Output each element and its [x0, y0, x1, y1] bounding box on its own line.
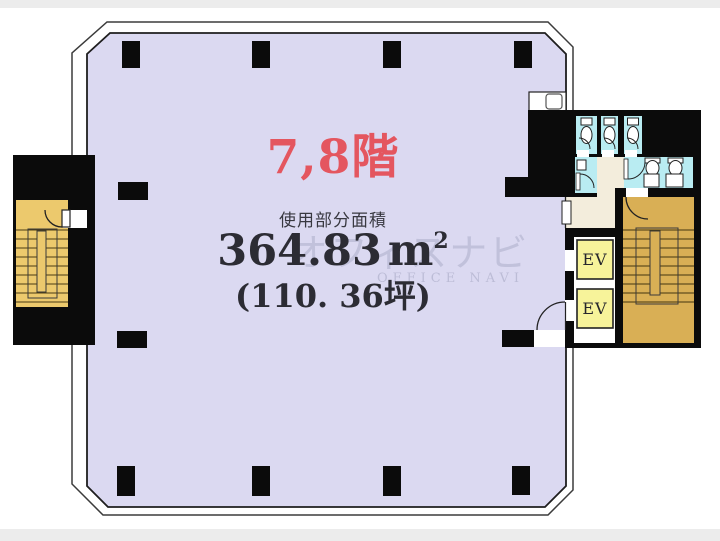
toilet-stalls: [576, 116, 642, 157]
column-icon: [252, 466, 270, 496]
wall-stub: [505, 177, 528, 197]
left-stair-handrail: [37, 231, 46, 292]
column-icon: [117, 466, 135, 496]
column-icon: [383, 41, 401, 68]
toilet-icon: [604, 127, 615, 144]
column-icon: [252, 41, 270, 68]
column-icon: [383, 466, 401, 496]
area-sqm-superscript: 2: [433, 228, 448, 254]
sink-icon: [546, 94, 562, 109]
door-opening: [534, 330, 565, 347]
urinal-icon: [669, 161, 682, 176]
area-sqm-unit: m: [388, 226, 434, 276]
area-sqm: 364.83m2: [183, 227, 483, 276]
toilet-tank-icon: [581, 118, 592, 125]
urinal-icon: [646, 161, 659, 176]
toilet-icon: [628, 127, 639, 144]
floor-plan: オフィスナビ OFFICE NAVI 7,8階 使用部分面積 364.83m2 …: [0, 0, 720, 541]
elevator-door-opening: [565, 250, 574, 271]
toilet-tank-icon: [628, 118, 639, 125]
area-sqm-value: 364.83: [217, 226, 382, 276]
bottom-frame-strip: [0, 529, 720, 541]
mens-wc: [624, 157, 693, 188]
toilet-tank-icon: [604, 118, 615, 125]
column-icon: [122, 41, 140, 68]
elevator-door-opening: [565, 300, 574, 321]
top-frame-strip: [0, 0, 720, 8]
accessible-wc: [575, 157, 597, 193]
door-leaf-icon: [576, 173, 580, 190]
right-stair-block: [615, 188, 701, 348]
column-icon: [512, 466, 530, 495]
door-opening: [626, 188, 648, 197]
door-opening: [602, 150, 614, 157]
door-leaf-icon: [562, 201, 571, 224]
column-icon: [514, 41, 532, 68]
sink-icon: [644, 174, 659, 187]
wall-stub: [502, 330, 534, 347]
floor-title: 7,8階: [203, 131, 463, 185]
column-icon: [118, 182, 148, 200]
sink-icon: [577, 160, 586, 170]
door-leaf-icon: [624, 159, 628, 179]
sink-icon: [666, 174, 683, 187]
area-tsubo: (110. 36坪): [183, 277, 483, 315]
right-stair-handrail: [650, 231, 660, 295]
elevator-hall: [565, 197, 623, 228]
door-opening: [625, 150, 637, 157]
left-stair-block: [13, 155, 95, 345]
column-icon: [117, 331, 147, 348]
elevator-2-label: EV: [577, 289, 613, 328]
elevator-1-label: EV: [577, 240, 613, 279]
door-leaf-icon: [62, 210, 70, 227]
door-opening: [577, 150, 589, 157]
